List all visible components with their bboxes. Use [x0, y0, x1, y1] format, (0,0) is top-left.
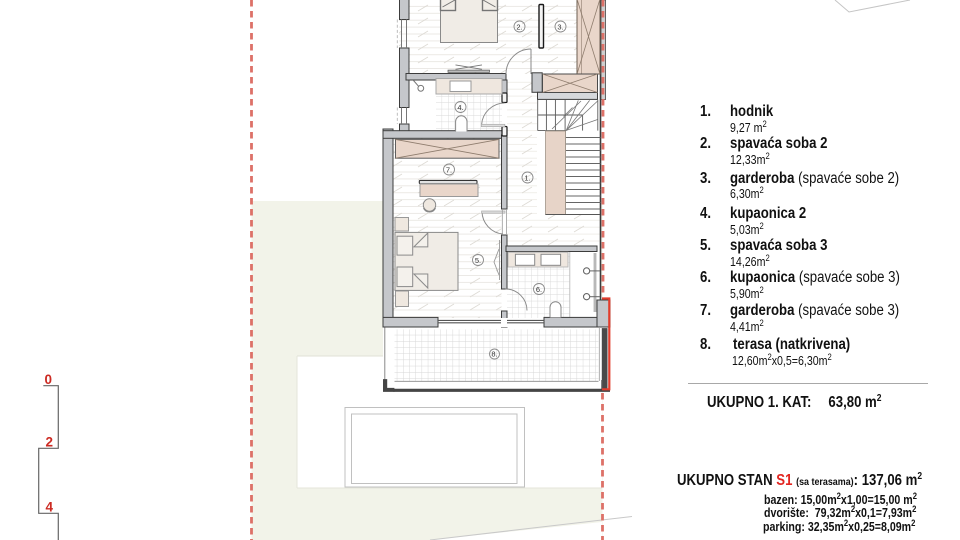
svg-text:1.: 1.: [524, 173, 530, 182]
svg-text:2: 2: [46, 435, 54, 450]
svg-text:8.: 8.: [491, 350, 497, 359]
svg-text:3.: 3.: [557, 22, 563, 31]
svg-text:4.: 4.: [457, 103, 463, 112]
svg-text:4: 4: [46, 500, 54, 515]
svg-text:6.: 6.: [536, 285, 542, 294]
svg-text:5.: 5.: [475, 256, 481, 265]
svg-text:2.: 2.: [516, 22, 522, 31]
svg-text:7.: 7.: [446, 165, 452, 174]
svg-text:0: 0: [45, 372, 53, 387]
